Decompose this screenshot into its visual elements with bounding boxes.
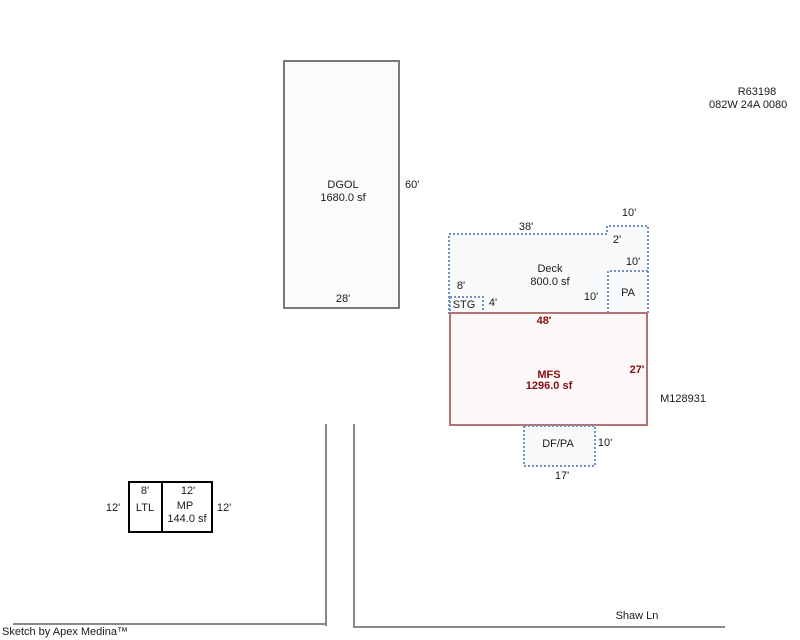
property-sketch: R63198 082W 24A 0080 DGOL 1680.0 sf 60' … [0,0,800,640]
mfs-top-dim: 48' [537,315,552,328]
dgol-area: 1680.0 sf [320,192,365,205]
stg-right-dim: 4' [489,297,497,310]
mfs-tag: M128931 [660,393,706,406]
stg-name: STG [453,299,476,312]
mfs-right-dim: 27' [630,364,645,377]
dgol-right-dim: 60' [405,179,419,192]
ltl-name: LTL [136,502,154,515]
mfs-area: 1296.0 sf [526,381,572,392]
deck-label: Deck 800.0 sf [530,263,569,289]
record-number: R63198 [738,86,777,99]
stg-top-dim: 8' [457,280,465,293]
dgol-label: DGOL 1680.0 sf [320,179,365,205]
dgol-name: DGOL [320,179,365,192]
dfpa-name: DF/PA [542,438,574,451]
ltl-top-dim: 8' [141,485,149,498]
deck-notch-right-dim: 2' [613,234,621,247]
mp-top-dim: 12' [181,485,195,498]
deck-notch-top-dim: 10' [622,207,636,220]
dfpa-right-dim: 10' [598,437,612,450]
pa-name: PA [621,287,635,300]
deck-top-dim: 38' [519,221,533,234]
sketch-credit: Sketch by Apex Medina™ [2,626,128,639]
sketch-canvas [0,0,800,640]
pa-top-dim: 10' [626,256,640,269]
deck-area: 800.0 sf [530,276,569,289]
mp-name: MP [177,500,194,513]
deck-name: Deck [530,263,569,276]
mfs-label: MFS 1296.0 sf [526,370,572,392]
parcel-number: 082W 24A 0080 [709,99,787,112]
ltl-left-dim: 12' [106,502,120,515]
mp-area: 144.0 sf [167,513,206,526]
street-name: Shaw Ln [616,610,659,623]
pa-left-dim: 10' [584,291,598,304]
dfpa-bottom-dim: 17' [555,470,569,483]
mp-right-dim: 12' [217,502,231,515]
dgol-bottom-dim: 28' [336,293,350,306]
